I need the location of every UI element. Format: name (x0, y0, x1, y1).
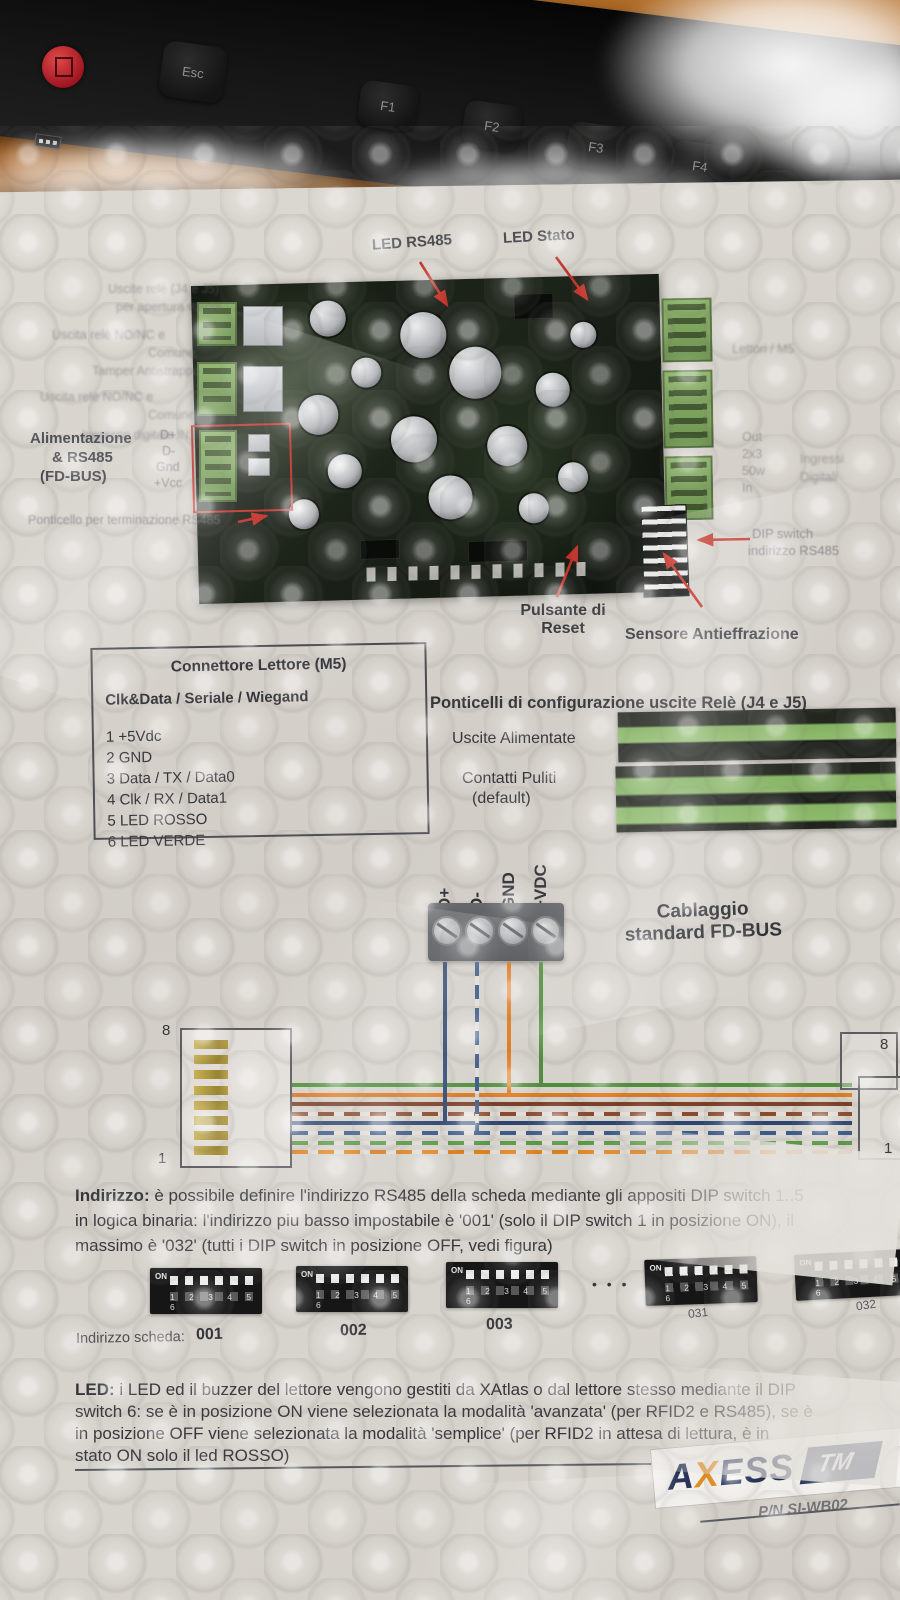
rj45-connector-right-b (858, 1076, 900, 1160)
cable-wire (292, 1141, 852, 1145)
dip-switches (316, 1274, 402, 1283)
capacitor (449, 346, 502, 399)
capacitor (289, 499, 320, 530)
brand-tag-text: TM (815, 1447, 856, 1478)
pulsante-reset-line1: Pulsante di (520, 602, 605, 619)
led-note-line1-rest: i LED ed il buzzer del lettore vengono g… (115, 1380, 796, 1399)
connettore-lettore-box: Connettore Lettore (M5) Clk&Data / Seria… (90, 642, 429, 840)
indirizzo-line2: in logica binaria: l'indirizzo piu basso… (75, 1211, 893, 1231)
dip-figure-002: ON 1 2 3 4 5 6 (296, 1266, 408, 1312)
left-small-label: Tamper Antistrappo (92, 364, 200, 378)
brand-x: X (692, 1452, 720, 1495)
capacitor (298, 394, 339, 435)
terminal-label-vdc: +VDC (531, 826, 551, 910)
pcb-silkscreen-row (366, 562, 596, 582)
left-small-label: per apertura varchi (116, 300, 266, 314)
fdbus-terminal-block (428, 903, 564, 961)
key-f1-label: F1 (379, 98, 396, 115)
cable-wire (292, 1102, 852, 1106)
indirizzo-line1: Indirizzo: è possibile definire l'indiri… (75, 1186, 893, 1206)
capacitor (400, 312, 447, 359)
alimentazione-label: Alimentazione (30, 430, 132, 447)
led-note-line1: LED: i LED ed il buzzer del lettore veng… (75, 1380, 893, 1400)
rj45-pin (194, 1101, 228, 1110)
axess-logo-tag: TM (800, 1441, 883, 1484)
terminal-label-dminus: D- (467, 826, 487, 910)
axess-brand-text: AXESS (666, 1446, 796, 1499)
led-note-bold: LED: (75, 1380, 115, 1399)
left-small-label: Uscita relè NO/NC e (40, 390, 220, 404)
terminal-label-gnd: GND (499, 826, 519, 910)
capacitor (558, 462, 589, 493)
cable-wire (292, 1121, 852, 1125)
dip-switch-component (640, 504, 689, 598)
key-esc: Esc (157, 40, 228, 104)
right-small-label: Lettori / M5 (732, 342, 795, 356)
capacitor (428, 475, 473, 520)
indirizzo-scheda-label: Indirizzo scheda: (76, 1329, 185, 1347)
dip-numbers: 1 2 3 4 5 6 (815, 1273, 900, 1298)
dip-switches (814, 1257, 900, 1270)
ic-chip (360, 539, 401, 560)
cable-wire (292, 1112, 852, 1116)
dip-on-label: ON (451, 1266, 463, 1275)
capacitor (570, 322, 597, 349)
address-001: 001 (196, 1326, 223, 1344)
key-esc-label: Esc (181, 63, 205, 81)
dip-switch-label: DIP switch (752, 526, 813, 541)
led-note-line2: switch 6: se è in posizione ON viene sel… (75, 1402, 893, 1422)
dip-figure-031: ON 1 2 3 4 5 6 (644, 1256, 758, 1306)
dip-numbers: 1 2 3 4 5 6 (665, 1280, 758, 1303)
connettore-subtitle: Clk&Data / Seriale / Wiegand (105, 686, 425, 709)
capacitor (327, 454, 362, 489)
key-f1: F1 (356, 79, 420, 133)
address-002: 002 (340, 1322, 367, 1340)
connettore-title: Connettore Lettore (M5) (93, 654, 425, 678)
photo-of-wiring-instruction-sheet: Esc F1 F2 F3 F4 F5 (0, 0, 900, 1600)
rj45-pin (194, 1040, 228, 1049)
capacitor (351, 357, 382, 388)
terminal-block-green-right (661, 298, 712, 363)
pin1-label-left: 1 (158, 1150, 166, 1167)
alimentazione-label2: & RS485 (52, 449, 113, 466)
ic-chip (513, 293, 554, 320)
indirizzo-line1-rest: è possibile definire l'indirizzo RS485 d… (150, 1186, 804, 1205)
terminazione-label: Ponticello per terminazione RS485 (28, 513, 248, 527)
right-small-label: Digitali (800, 470, 838, 484)
dip-on-label: ON (799, 1258, 811, 1268)
left-small-label: Uscita relè NO/NC e (52, 328, 232, 342)
dip-figure-003: ON 1 2 3 4 5 6 (446, 1262, 558, 1308)
cablaggio-line2: standard FD-BUS (624, 919, 782, 945)
rj45-pin (194, 1131, 228, 1140)
screw-terminal (432, 916, 462, 946)
connettore-pinlist: 1 +5Vdc 2 GND 3 Data / TX / Data0 4 Clk … (106, 721, 428, 853)
alim-pin-dplus: D+ (160, 428, 176, 442)
contatti-puliti-label: Contatti Puliti (462, 770, 556, 788)
rj45-pin (194, 1116, 228, 1125)
dip-switch-label2: indirizzo RS485 (748, 543, 839, 558)
terminal-label-dplus: D+ (435, 826, 455, 910)
pin8-label-right: 8 (880, 1036, 888, 1053)
cablaggio-caption: Cablaggio standard FD-BUS (597, 896, 808, 947)
capacitor (390, 416, 437, 463)
address-032: 032 (855, 1297, 877, 1314)
jumper-photo-uscite-alimentate (618, 708, 897, 763)
alim-pin-vcc: +Vcc (154, 476, 182, 490)
capacitor (309, 300, 346, 337)
screw-terminal (531, 916, 561, 946)
pulsante-reset-label: Pulsante di Reset (508, 602, 618, 638)
dip-switches (170, 1276, 256, 1285)
dip-ellipsis: • • • (592, 1276, 629, 1292)
terminal-drop-wire (539, 962, 543, 1087)
terminal-drop-wire (443, 962, 447, 1125)
rj45-pin (194, 1070, 228, 1079)
led-note-line4: stato ON solo il led ROSSO) (75, 1446, 475, 1466)
dip-numbers: 1 2 3 4 5 6 (316, 1290, 408, 1310)
rj45-pin (194, 1146, 228, 1155)
cable-wire (292, 1131, 852, 1135)
terminal-drop-wire (507, 962, 511, 1097)
dip-figure-032: ON 1 2 3 4 5 6 (794, 1249, 900, 1301)
key-f2: F2 (460, 99, 524, 153)
address-003: 003 (486, 1316, 513, 1334)
dip-figure-001: ON 1 2 3 4 5 6 (150, 1268, 262, 1314)
left-small-label: Comune (148, 408, 195, 422)
cablaggio-line1: Cablaggio (656, 898, 749, 922)
brand-a: A (666, 1455, 696, 1498)
rj45-connector-left (180, 1028, 292, 1168)
indirizzo-bold: Indirizzo: (75, 1186, 150, 1205)
alim-pin-dminus: D- (162, 444, 175, 458)
capacitor (518, 493, 549, 524)
white-connector (243, 366, 283, 412)
cable-wire (292, 1083, 852, 1087)
rj45-pin (194, 1055, 228, 1064)
default-note: (default) (472, 790, 531, 808)
brand-ess: ESS (717, 1446, 795, 1493)
terminal-block-green (197, 362, 237, 416)
capacitor (535, 372, 570, 407)
pulsante-reset-line2: Reset (541, 620, 585, 637)
uscite-alimentate-label: Uscite Alimentate (452, 730, 576, 748)
dip-on-label: ON (301, 1270, 313, 1279)
power-button (42, 46, 84, 88)
dip-numbers: 1 2 3 4 5 6 (170, 1292, 262, 1312)
alimentazione-label3: (FD-BUS) (40, 468, 107, 485)
right-small-label: 2x3 (742, 447, 762, 461)
cable-wire (292, 1150, 852, 1154)
pin8-label-left: 8 (162, 1022, 170, 1039)
dip-on-label: ON (155, 1272, 167, 1281)
right-small-label: 50w (742, 464, 765, 478)
capacitor (487, 425, 528, 466)
ic-chip (468, 539, 529, 563)
key-f2-label: F2 (483, 118, 500, 135)
right-small-label: Out (742, 430, 762, 444)
rj45-pin (194, 1086, 228, 1095)
jumper-photo-contatti-puliti (615, 762, 896, 833)
alim-pin-gnd: Gnd (156, 460, 180, 474)
right-small-label: Ingressi (800, 452, 844, 466)
terminal-drop-wire (475, 962, 479, 1135)
indirizzo-line3: massimo è '032' (tutti i DIP switch in p… (75, 1236, 893, 1256)
dip-on-label: ON (649, 1263, 661, 1272)
screw-terminal (498, 916, 528, 946)
pin1-label-right: 1 (884, 1140, 892, 1157)
dip-switches (664, 1264, 750, 1276)
left-small-label: Comune (148, 346, 195, 360)
right-small-label: In (742, 481, 752, 495)
cable-wire (292, 1093, 852, 1097)
dip-numbers: 1 2 3 4 5 6 (466, 1286, 558, 1306)
dip-switches (466, 1270, 552, 1279)
cable-bundle (292, 1083, 852, 1161)
left-small-label: Uscite relè (J4 e J5) (108, 282, 258, 296)
screw-terminal (465, 916, 495, 946)
address-031: 031 (687, 1305, 708, 1321)
terminal-block-green-right (662, 370, 713, 449)
sensore-label: Sensore Antieffrazione (625, 626, 799, 644)
